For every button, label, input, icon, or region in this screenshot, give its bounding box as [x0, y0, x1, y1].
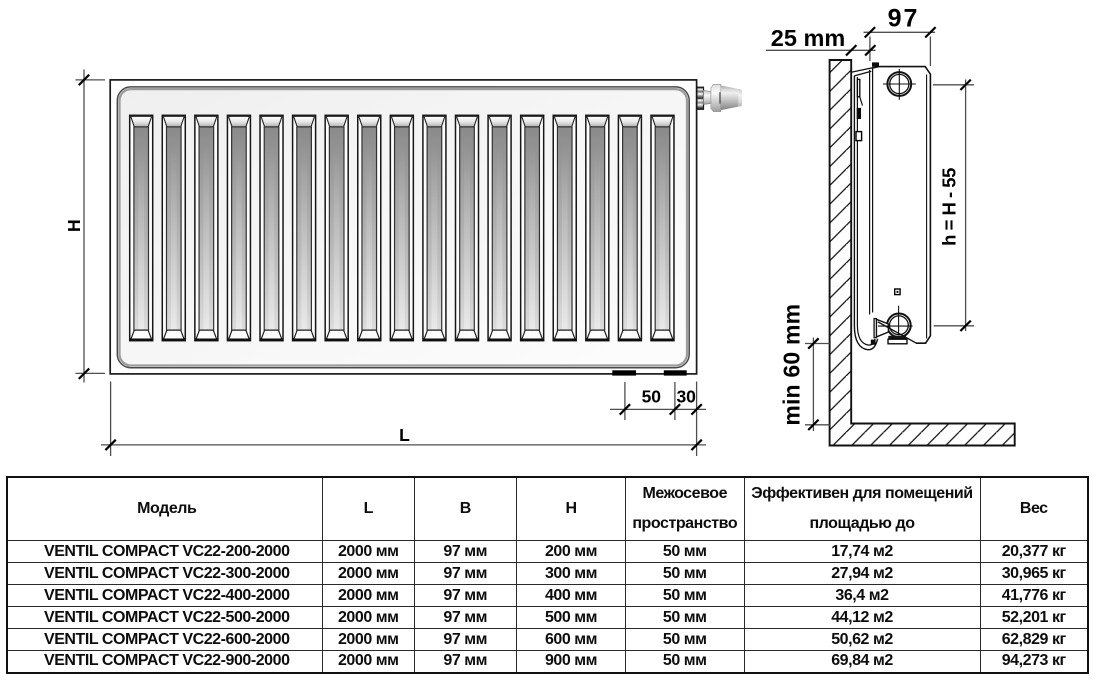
- svg-text:50: 50: [642, 387, 662, 407]
- svg-text:H: H: [64, 219, 84, 232]
- svg-text:L: L: [399, 425, 410, 445]
- svg-text:97: 97: [888, 5, 920, 33]
- svg-text:h = H - 55: h = H - 55: [938, 168, 959, 246]
- svg-text:30: 30: [676, 387, 696, 407]
- svg-text:25 mm: 25 mm: [771, 25, 845, 51]
- svg-text:min 60 mm: min 60 mm: [778, 304, 804, 426]
